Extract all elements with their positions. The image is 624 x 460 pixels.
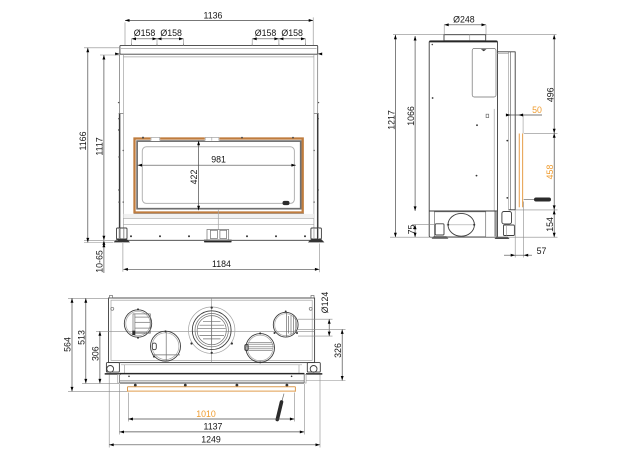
- svg-text:513: 513: [77, 330, 87, 345]
- svg-text:Ø158: Ø158: [160, 28, 182, 38]
- svg-text:Ø158: Ø158: [134, 28, 156, 38]
- svg-text:458: 458: [545, 165, 555, 180]
- svg-text:1217: 1217: [386, 110, 396, 130]
- svg-text:326: 326: [333, 343, 343, 358]
- svg-text:1066: 1066: [406, 106, 416, 126]
- svg-text:57: 57: [537, 246, 547, 256]
- svg-text:Ø158: Ø158: [255, 28, 277, 38]
- svg-text:50: 50: [532, 105, 542, 115]
- svg-text:1166: 1166: [78, 131, 88, 150]
- svg-text:1010: 1010: [196, 409, 216, 419]
- svg-text:1136: 1136: [204, 11, 223, 21]
- svg-text:422: 422: [189, 170, 199, 185]
- svg-text:981: 981: [211, 155, 226, 165]
- svg-text:1117: 1117: [95, 137, 105, 155]
- svg-text:Ø248: Ø248: [453, 15, 475, 25]
- svg-text:1184: 1184: [212, 259, 231, 269]
- svg-text:564: 564: [63, 337, 73, 352]
- svg-text:10-65: 10-65: [95, 250, 105, 273]
- svg-text:1137: 1137: [204, 422, 223, 432]
- svg-text:496: 496: [545, 87, 555, 102]
- svg-text:1249: 1249: [201, 435, 221, 445]
- svg-text:154: 154: [545, 217, 555, 232]
- svg-text:Ø158: Ø158: [281, 28, 303, 38]
- svg-text:Ø124: Ø124: [320, 292, 330, 314]
- svg-text:75: 75: [406, 225, 416, 235]
- svg-text:306: 306: [91, 346, 101, 361]
